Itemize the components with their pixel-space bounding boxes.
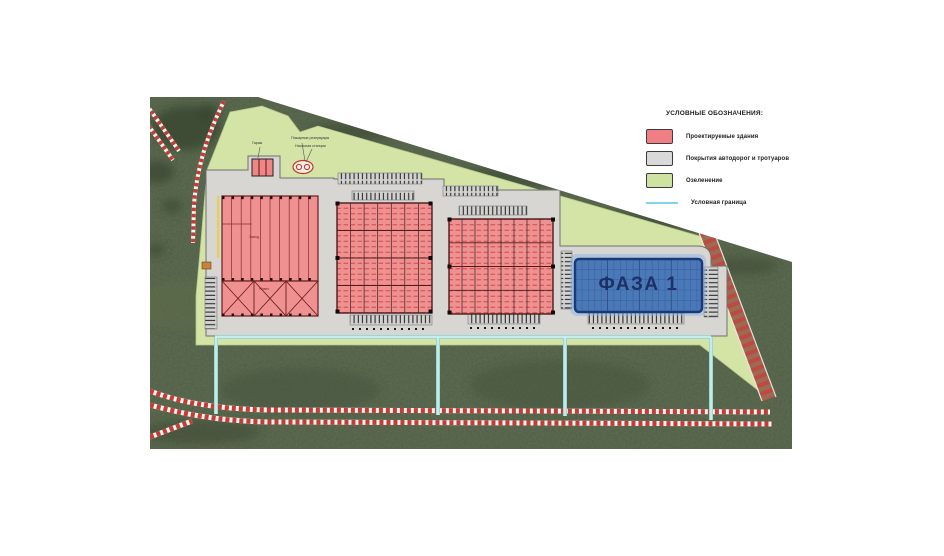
legend-swatch-projected-buildings	[646, 129, 673, 144]
garage-building	[252, 159, 273, 176]
transformer-box	[202, 262, 211, 269]
legend-line-boundary	[646, 202, 678, 204]
building-factory	[217, 196, 318, 316]
factory-label: Завод	[249, 235, 259, 239]
pump-station-annotation: Насосная станция	[295, 144, 326, 148]
canopy-label: Навес	[259, 287, 269, 291]
legend-swatch-greenery	[646, 173, 673, 188]
fire-reservoirs-annotation: Пожарные резервуары	[291, 136, 329, 140]
legend-row-buildings: Проектируемые здания	[646, 129, 816, 144]
legend-label-projected-buildings: Проектируемые здания	[686, 134, 758, 140]
legend-title: УСЛОВНЫЕ ОБОЗНАЧЕНИЯ:	[666, 110, 816, 117]
site-plan-drawing	[0, 0, 944, 556]
building-warehouse-2	[448, 218, 556, 315]
legend-label-boundary: Условная граница	[691, 200, 746, 206]
legend-row-boundary: Условная граница	[646, 195, 816, 210]
garage-annotation: Гараж	[252, 141, 262, 145]
road-marker-emblem	[706, 227, 727, 237]
legend-label-pavement: Покрытия автодорог и тротуаров	[686, 156, 789, 162]
legend-swatch-pavement	[646, 151, 673, 166]
site-plan-page: УСЛОВНЫЕ ОБОЗНАЧЕНИЯ: Проектируемые здан…	[0, 0, 944, 556]
legend-row-pavement: Покрытия автодорог и тротуаров	[646, 151, 816, 166]
building-warehouse-1	[336, 202, 433, 314]
legend-row-greenery: Озеленение	[646, 173, 816, 188]
phase-1-label: ФАЗА 1	[575, 258, 702, 312]
fire-reservoirs	[293, 161, 313, 174]
legend-label-greenery: Озеленение	[686, 178, 723, 184]
legend: УСЛОВНЫЕ ОБОЗНАЧЕНИЯ: Проектируемые здан…	[646, 110, 816, 217]
